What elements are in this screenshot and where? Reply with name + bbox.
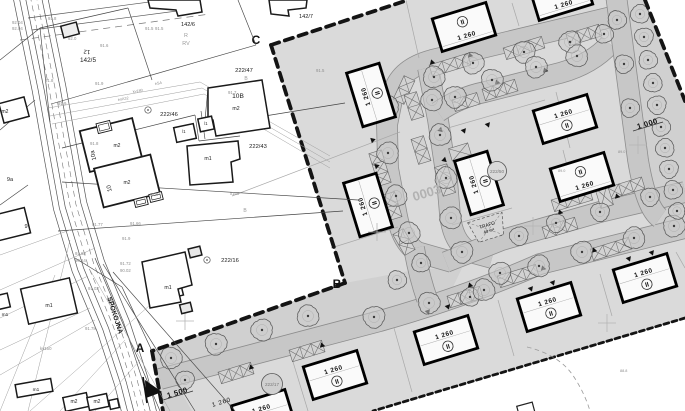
svg-text:90.14: 90.14 [75,258,86,263]
svg-text:91.9: 91.9 [150,192,159,197]
svg-text:91.6: 91.6 [100,43,109,48]
svg-text:91.5: 91.5 [155,26,164,31]
svg-text:m1: m1 [204,156,211,162]
svg-text:91.78: 91.78 [85,326,96,331]
svg-text:92.04: 92.04 [12,26,23,31]
svg-text:91.9: 91.9 [58,101,67,106]
svg-text:142/7: 142/7 [299,14,313,20]
svg-text:91.9: 91.9 [95,81,104,86]
svg-text:m1: m1 [164,285,171,291]
svg-text:222/17: 222/17 [265,382,279,387]
svg-text:222/16: 222/16 [221,258,239,264]
svg-text:RV: RV [182,41,190,47]
svg-text:m1: m1 [2,312,9,318]
svg-text:9a: 9a [7,177,14,183]
svg-text:91.03: 91.03 [88,286,99,291]
svg-text:92.04: 92.04 [12,20,23,25]
svg-text:88.8: 88.8 [620,369,627,373]
svg-text:91.66: 91.66 [130,221,141,226]
svg-text:x160: x160 [230,191,240,196]
svg-text:91.5: 91.5 [145,26,154,31]
svg-text:m2: m2 [114,143,121,149]
svg-text:222/43: 222/43 [249,144,267,150]
svg-text:12: 12 [83,48,91,55]
svg-text:89.0: 89.0 [618,150,625,154]
svg-text:m1: m1 [45,303,52,309]
svg-text:91.77: 91.77 [92,222,103,227]
svg-text:R: R [184,33,188,39]
svg-text:142/5: 142/5 [80,57,96,64]
svg-text:m2: m2 [232,106,239,112]
svg-text:91.9: 91.9 [122,236,131,241]
svg-text:m1: m1 [33,387,40,393]
svg-text:B: B [333,277,342,291]
svg-text:91.63: 91.63 [75,251,86,256]
svg-text:m2: m2 [94,399,101,405]
svg-text:222/47: 222/47 [235,68,253,74]
svg-text:9: 9 [24,224,27,230]
svg-text:91.72: 91.72 [120,261,131,266]
svg-text:91.8: 91.8 [48,16,57,21]
svg-text:90.02: 90.02 [120,268,131,273]
svg-text:91.7: 91.7 [228,90,237,95]
svg-text:91.5: 91.5 [316,68,325,73]
svg-text:142/6: 142/6 [181,22,195,28]
svg-text:m2: m2 [124,180,131,186]
svg-text:92.0: 92.0 [68,36,77,41]
svg-text:91.8: 91.8 [90,141,99,146]
svg-text:89.0: 89.0 [558,169,565,173]
svg-text:222/50: 222/50 [490,169,504,174]
svg-text:91.8: 91.8 [45,78,54,83]
svg-text:222/46: 222/46 [160,112,178,118]
svg-text:m2: m2 [71,399,78,405]
svg-text:m2: m2 [2,109,9,115]
svg-text:kv160: kv160 [40,346,52,351]
